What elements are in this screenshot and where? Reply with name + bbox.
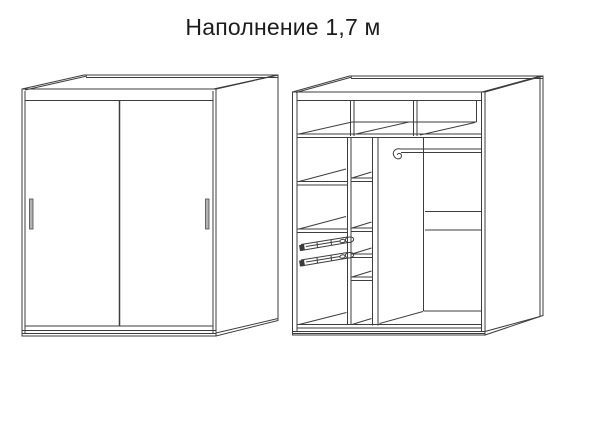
drawer-slide-upper xyxy=(299,236,354,251)
closed-wardrobe-side-panel xyxy=(216,75,278,336)
closed-wardrobe-front-doors xyxy=(22,89,216,336)
top-cubby-section xyxy=(297,101,482,138)
slide-cap xyxy=(299,244,305,251)
wardrobe-floor xyxy=(293,311,486,334)
left-door-handle xyxy=(30,199,34,229)
middle-column-shelves xyxy=(351,172,373,281)
open-wardrobe-top-panel xyxy=(293,76,544,93)
hanging-rod xyxy=(393,149,481,159)
right-door-handle xyxy=(206,199,210,229)
closed-wardrobe-top-panel xyxy=(22,75,278,90)
drawer-slide-lower xyxy=(299,252,354,267)
wardrobe-diagram xyxy=(0,0,600,422)
left-column-shelves xyxy=(297,169,348,233)
right-compartment-shelves xyxy=(425,212,482,231)
slide-cap xyxy=(299,260,305,267)
open-wardrobe-side-panel xyxy=(485,76,543,335)
page: Наполнение 1,7 м xyxy=(0,0,600,422)
open-wardrobe-drawing xyxy=(293,76,544,335)
rod-end-hook xyxy=(393,149,401,159)
closed-wardrobe-drawing xyxy=(22,75,278,336)
